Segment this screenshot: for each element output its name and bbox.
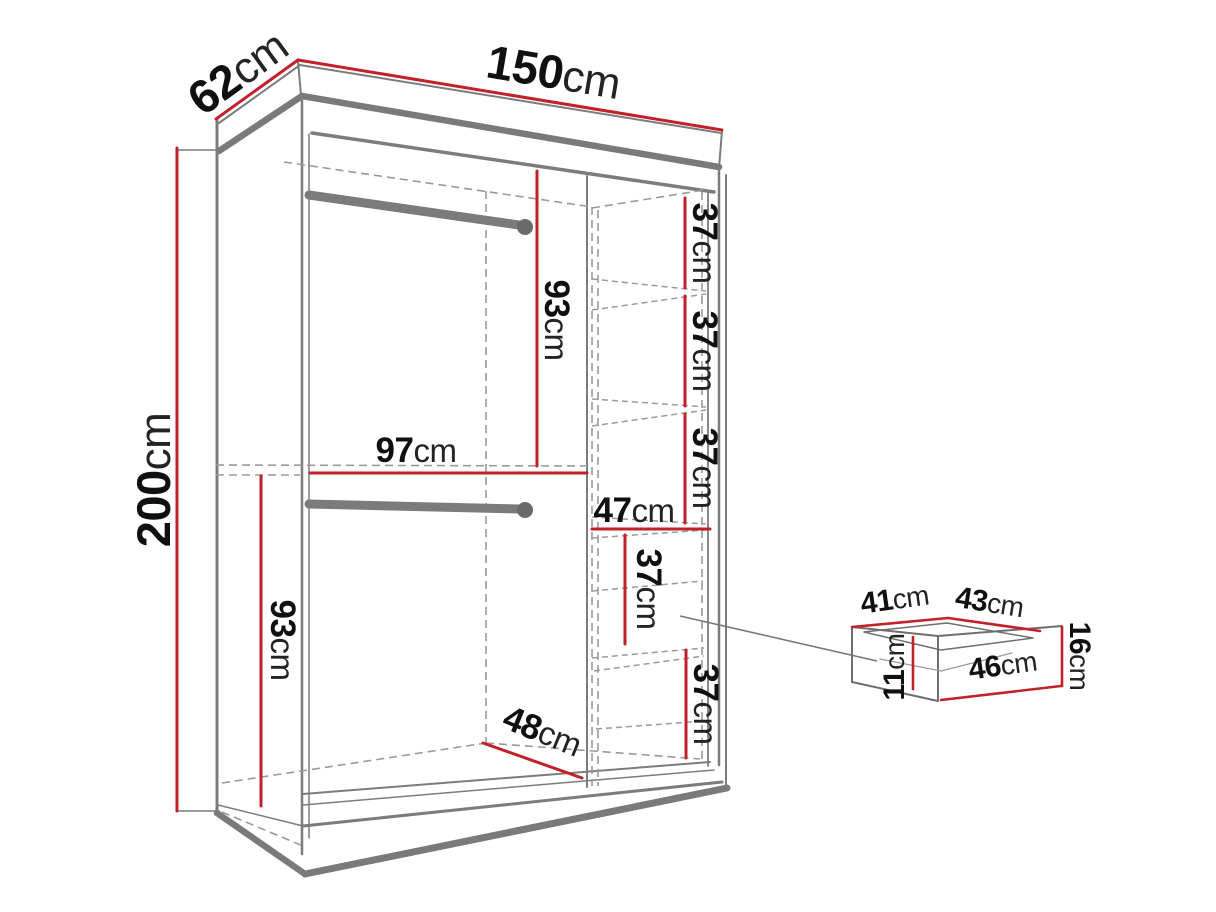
bottom-rod-end-knob [517, 502, 533, 518]
dim-bottom-rod-height-label: 93cm [263, 600, 302, 681]
dim-shelf2-label: 37cm [685, 311, 724, 392]
dim-shelf3-label: 37cm [685, 428, 724, 509]
dim-top-rod-height-label: 93cm [537, 280, 576, 361]
dim-base-depth-label: 48cm [497, 698, 587, 764]
dim-shelf5-label: 37cm [686, 664, 725, 745]
top-rod-end-knob [517, 219, 533, 235]
dim-shelf4-label: 37cm [629, 549, 668, 630]
hanging-rods [309, 195, 533, 518]
dim-shelf-column-width-label: 47cm [594, 491, 675, 530]
dim-shelf1-label: 37cm [685, 203, 724, 284]
diagram-canvas: 62cm 150cm 200cm 93cm 97cm 93cm 48cm 47c… [0, 0, 1216, 912]
wardrobe-dimension-diagram: 62cm 150cm 200cm 93cm 97cm 93cm 48cm 47c… [0, 0, 1216, 912]
drawer-leader-line [680, 616, 877, 661]
dim-left-section-width-label: 97cm [376, 431, 457, 470]
dim-height-label: 200cm [127, 413, 180, 548]
dim-drawer-inner-height-label: 11cm [878, 633, 911, 700]
dim-drawer-front-width-label: 46cm [966, 644, 1039, 686]
bottom-hanging-rod [309, 504, 519, 509]
top-hanging-rod [309, 195, 519, 225]
dim-drawer-top-right-label: 43cm [953, 581, 1026, 624]
dim-drawer-front-height-label: 16cm [1063, 622, 1096, 691]
dim-drawer-top-left-label: 41cm [858, 578, 931, 620]
